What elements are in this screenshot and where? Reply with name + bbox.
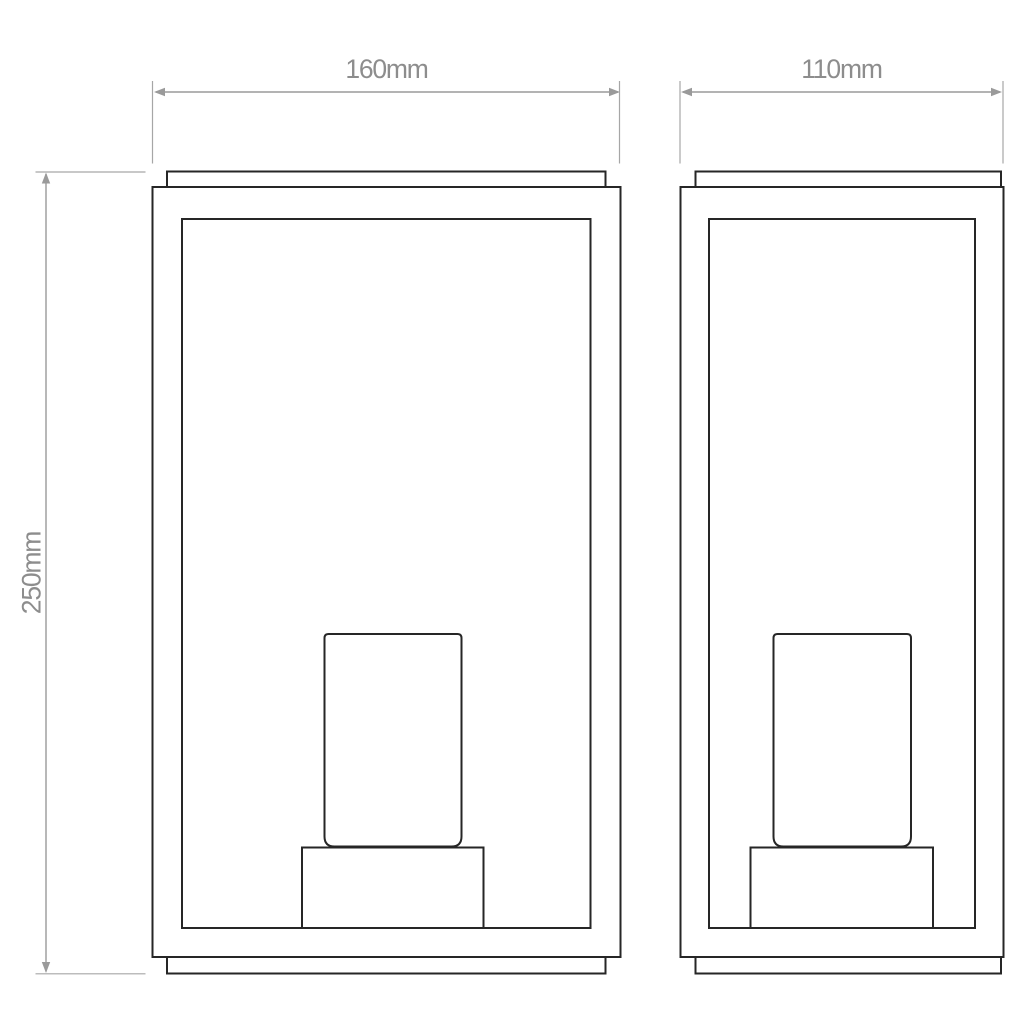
svg-text:250mm: 250mm (17, 532, 47, 614)
svg-text:110mm: 110mm (801, 54, 882, 84)
svg-text:160mm: 160mm (345, 54, 427, 84)
